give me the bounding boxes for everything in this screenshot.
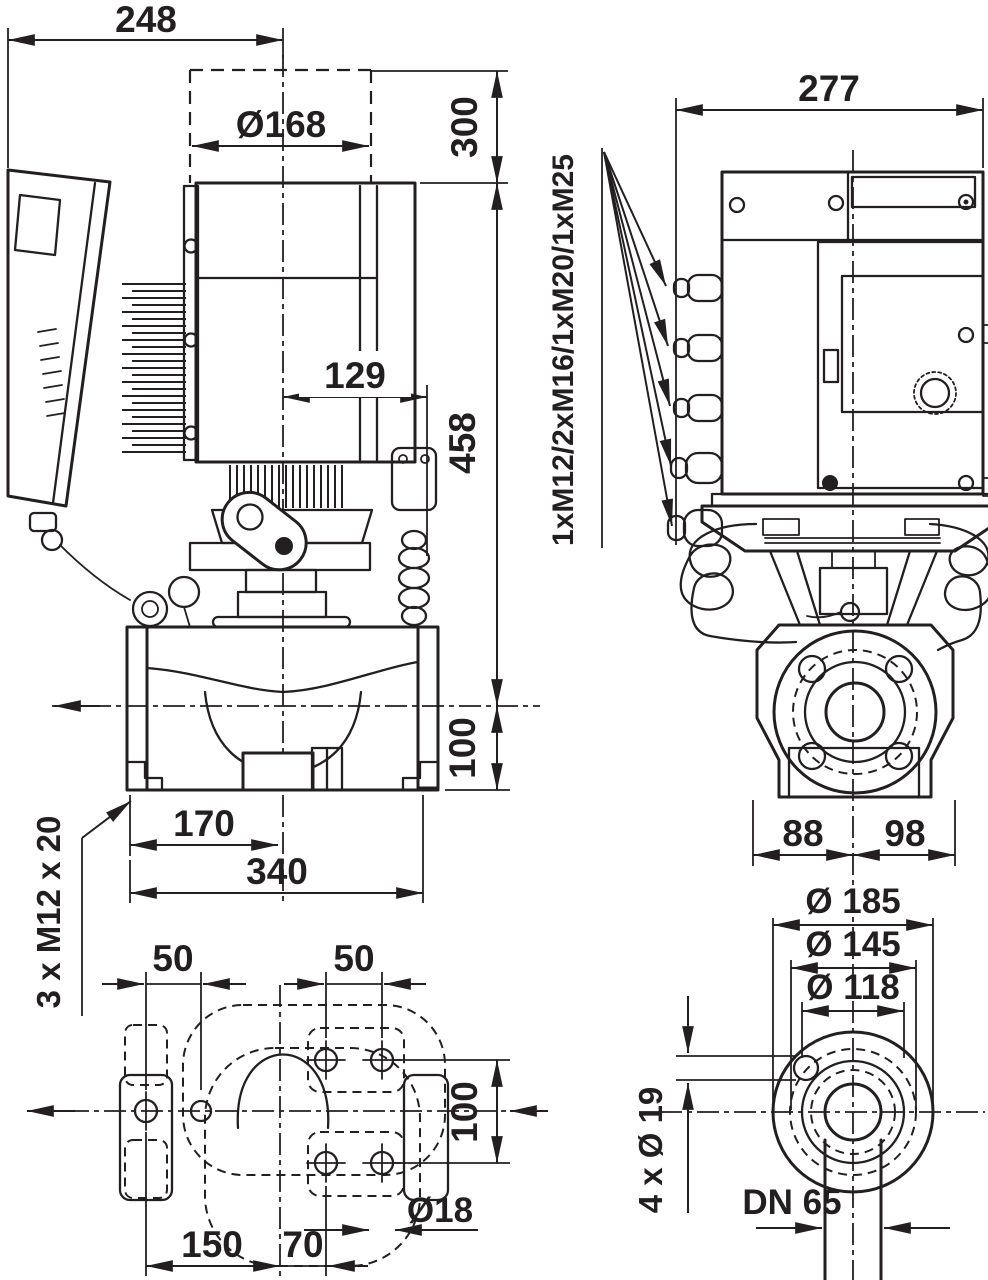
dim-flange-outer: Ø 185: [805, 882, 900, 921]
dim-motor-diameter: Ø168: [236, 104, 327, 145]
dim-center-to-right: 98: [884, 813, 925, 854]
dim-port-to-center: 170: [173, 803, 235, 844]
front-view-motor: [184, 183, 436, 625]
dim-right-hole-spacing: 50: [333, 938, 374, 979]
side-view-volute: [757, 625, 953, 797]
dim-raised-face: Ø 118: [806, 968, 899, 1007]
label-bolt-holes: 4 x Ø 19: [632, 1087, 669, 1214]
dim-left-hole-spacing: 50: [152, 938, 193, 979]
dim-hole-row-spacing: 100: [444, 1081, 485, 1143]
dim-module-offset: 129: [324, 355, 386, 396]
dim-top-clearance: 300: [444, 96, 485, 158]
dim-center-to-left: 88: [782, 813, 823, 854]
dim-height-below-axis: 100: [442, 717, 483, 779]
clamp-bracket: [211, 481, 317, 580]
dim-side-width: 277: [798, 68, 860, 109]
front-view: 248 Ø168 300 458 100 129 170 340: [8, 0, 540, 1016]
side-view-terminal-box: [722, 172, 988, 496]
flange-view: Ø 185 Ø 145 Ø 118 4 x Ø 19 DN 65: [632, 882, 985, 1280]
label-nominal-bore: DN 65: [742, 1183, 841, 1222]
label-foot-bolts: 3 x M12 x 20: [30, 816, 67, 1009]
dim-height-above-axis: 458: [442, 412, 483, 474]
dim-center-to-left-holes: 150: [181, 1224, 243, 1265]
dim-hole-diameter: Ø18: [407, 1191, 473, 1230]
front-view-fins: [122, 284, 186, 452]
dim-bolt-circle: Ø 145: [805, 925, 900, 964]
drawing-canvas: 248 Ø168 300 458 100 129 170 340: [0, 0, 988, 1280]
dim-port-to-port: 340: [246, 851, 308, 892]
dim-width-top: 248: [115, 0, 177, 40]
side-view: 277 1xM12/2xM16/1xM20/1xM25 88 98: [547, 68, 988, 1280]
base-plan-dimensions: 50 50 100 Ø18 150 70: [102, 938, 510, 1276]
front-view-module-outline: [8, 170, 130, 600]
dim-center-to-right-holes: 70: [282, 1224, 323, 1265]
pump-dimensional-drawing: 248 Ø168 300 458 100 129 170 340: [0, 0, 988, 1280]
side-view-dimensions: 277 1xM12/2xM16/1xM20/1xM25 88 98: [547, 68, 983, 866]
base-plan-view: 50 50 100 Ø18 150 70: [27, 938, 548, 1280]
label-cable-glands: 1xM12/2xM16/1xM20/1xM25: [547, 154, 580, 546]
